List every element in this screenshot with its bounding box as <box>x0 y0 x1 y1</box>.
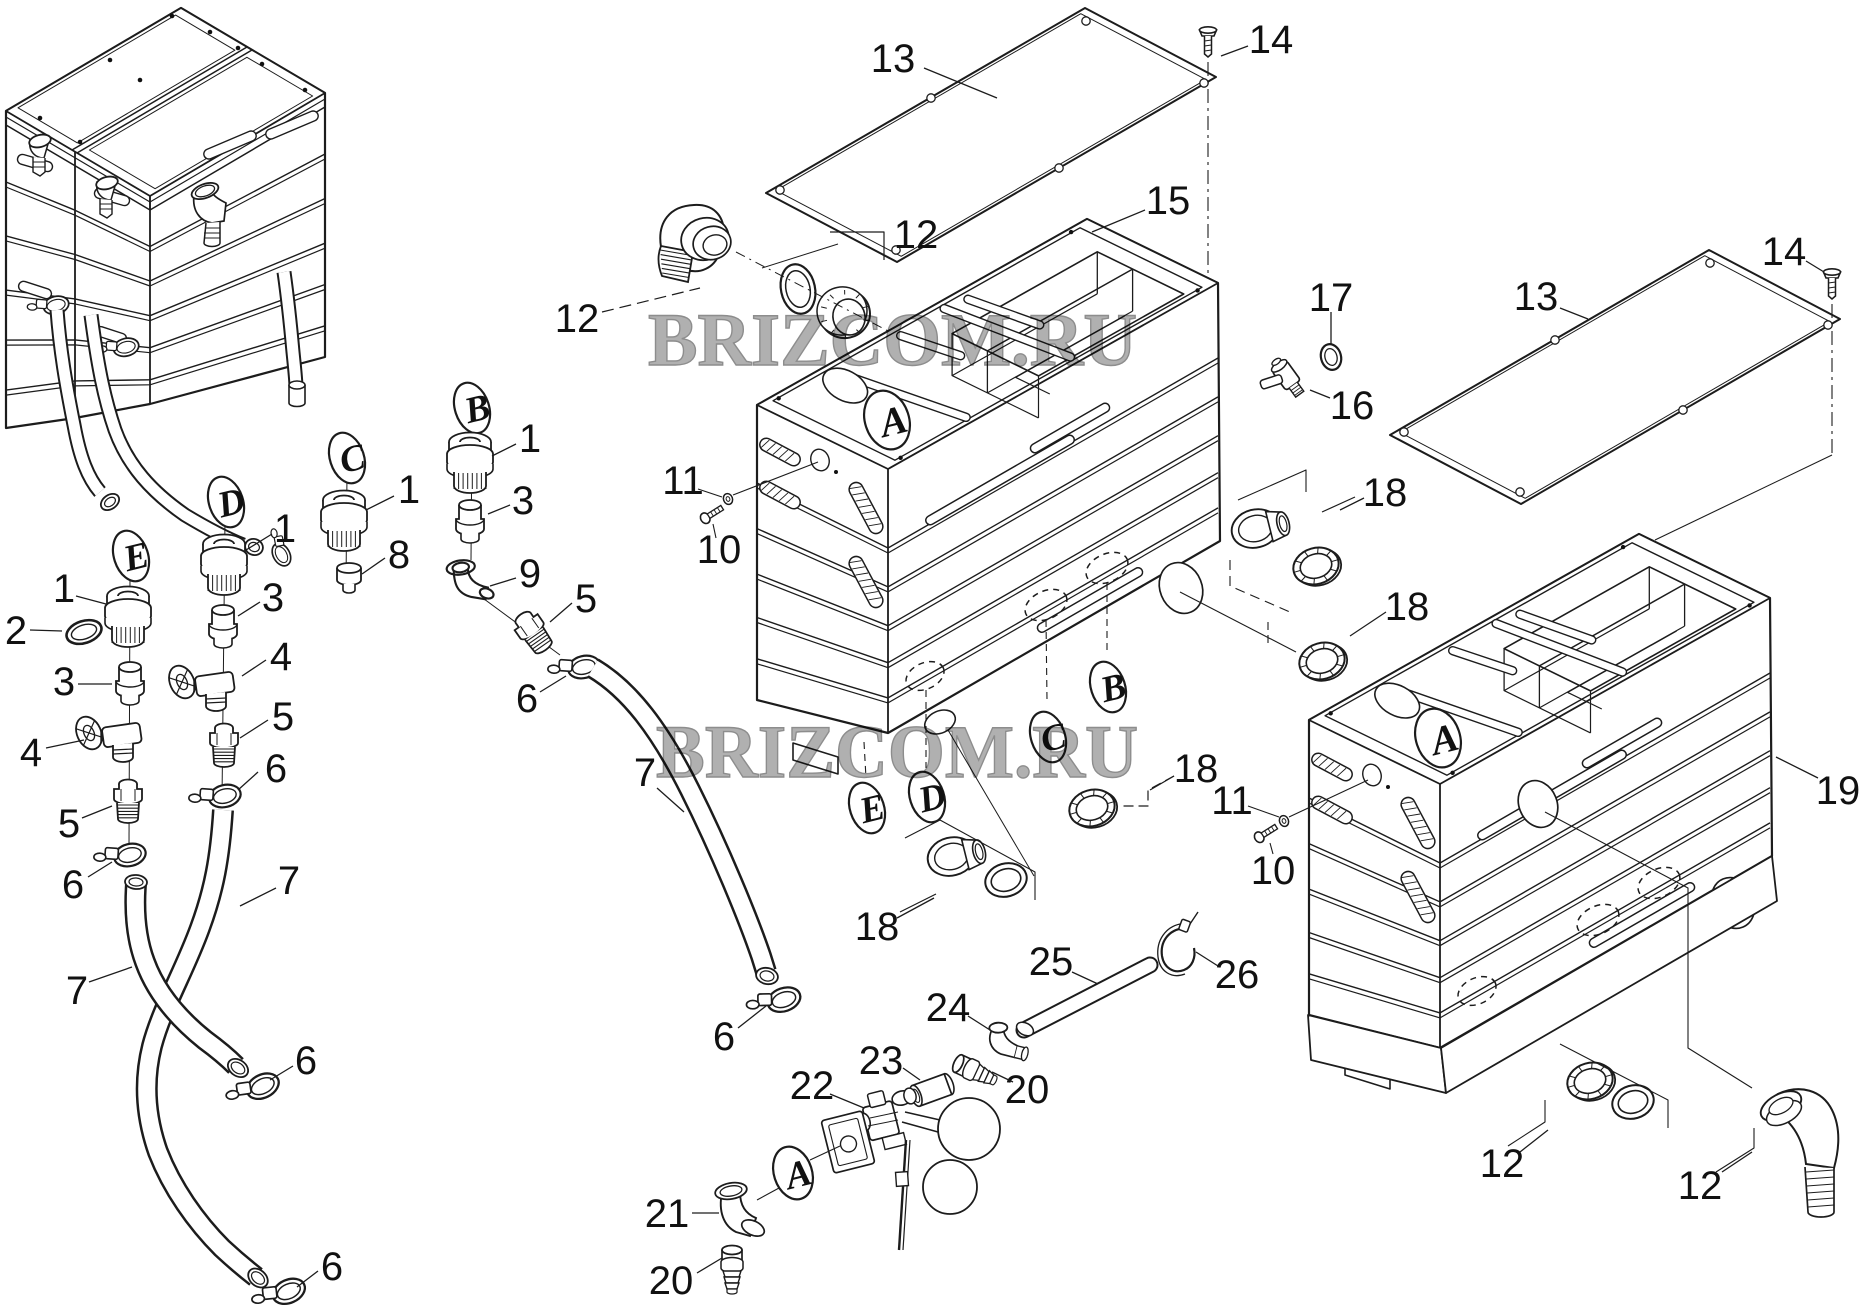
svg-text:21: 21 <box>645 1192 690 1236</box>
svg-text:20: 20 <box>1005 1068 1050 1112</box>
svg-text:13: 13 <box>871 37 916 81</box>
svg-text:18: 18 <box>1363 471 1408 515</box>
svg-text:7: 7 <box>634 751 656 795</box>
svg-text:12: 12 <box>1678 1164 1723 1208</box>
svg-text:9: 9 <box>519 552 541 596</box>
svg-text:4: 4 <box>20 731 42 775</box>
svg-text:1: 1 <box>53 567 75 611</box>
svg-text:12: 12 <box>894 213 939 257</box>
svg-text:3: 3 <box>512 479 534 523</box>
svg-text:19: 19 <box>1816 769 1861 813</box>
svg-text:16: 16 <box>1330 384 1375 428</box>
svg-text:11: 11 <box>1211 779 1253 823</box>
svg-text:10: 10 <box>697 528 742 572</box>
svg-text:25: 25 <box>1029 940 1074 984</box>
svg-text:26: 26 <box>1215 953 1260 997</box>
svg-text:18: 18 <box>1385 585 1430 629</box>
svg-text:24: 24 <box>926 986 971 1030</box>
svg-text:20: 20 <box>649 1259 694 1303</box>
svg-text:1: 1 <box>398 468 420 512</box>
svg-text:1: 1 <box>274 507 296 551</box>
svg-text:6: 6 <box>516 677 538 721</box>
svg-text:18: 18 <box>855 905 900 949</box>
svg-text:6: 6 <box>62 863 84 907</box>
svg-text:7: 7 <box>278 859 300 903</box>
svg-text:7: 7 <box>66 969 88 1013</box>
svg-text:10: 10 <box>1251 849 1296 893</box>
svg-text:15: 15 <box>1146 179 1191 223</box>
svg-text:6: 6 <box>265 747 287 791</box>
svg-text:5: 5 <box>575 577 597 621</box>
svg-text:13: 13 <box>1514 275 1559 319</box>
svg-text:2: 2 <box>5 609 27 653</box>
svg-text:14: 14 <box>1249 18 1294 62</box>
svg-text:BRIZCOM.RU: BRIZCOM.RU <box>648 299 1137 382</box>
svg-text:6: 6 <box>321 1245 343 1289</box>
svg-text:12: 12 <box>555 297 600 341</box>
svg-text:12: 12 <box>1480 1142 1525 1186</box>
svg-text:6: 6 <box>295 1039 317 1083</box>
svg-text:23: 23 <box>859 1039 904 1083</box>
svg-text:3: 3 <box>53 660 75 704</box>
svg-text:3: 3 <box>262 576 284 620</box>
svg-text:1: 1 <box>519 417 541 461</box>
svg-text:14: 14 <box>1762 230 1807 274</box>
svg-text:5: 5 <box>58 802 80 846</box>
svg-text:22: 22 <box>790 1064 835 1108</box>
svg-text:6: 6 <box>713 1015 735 1059</box>
svg-text:4: 4 <box>270 635 292 679</box>
svg-text:5: 5 <box>272 695 294 739</box>
svg-text:11: 11 <box>662 459 704 503</box>
svg-text:BRIZCOM.RU: BRIZCOM.RU <box>656 711 1138 794</box>
svg-text:8: 8 <box>388 533 410 577</box>
